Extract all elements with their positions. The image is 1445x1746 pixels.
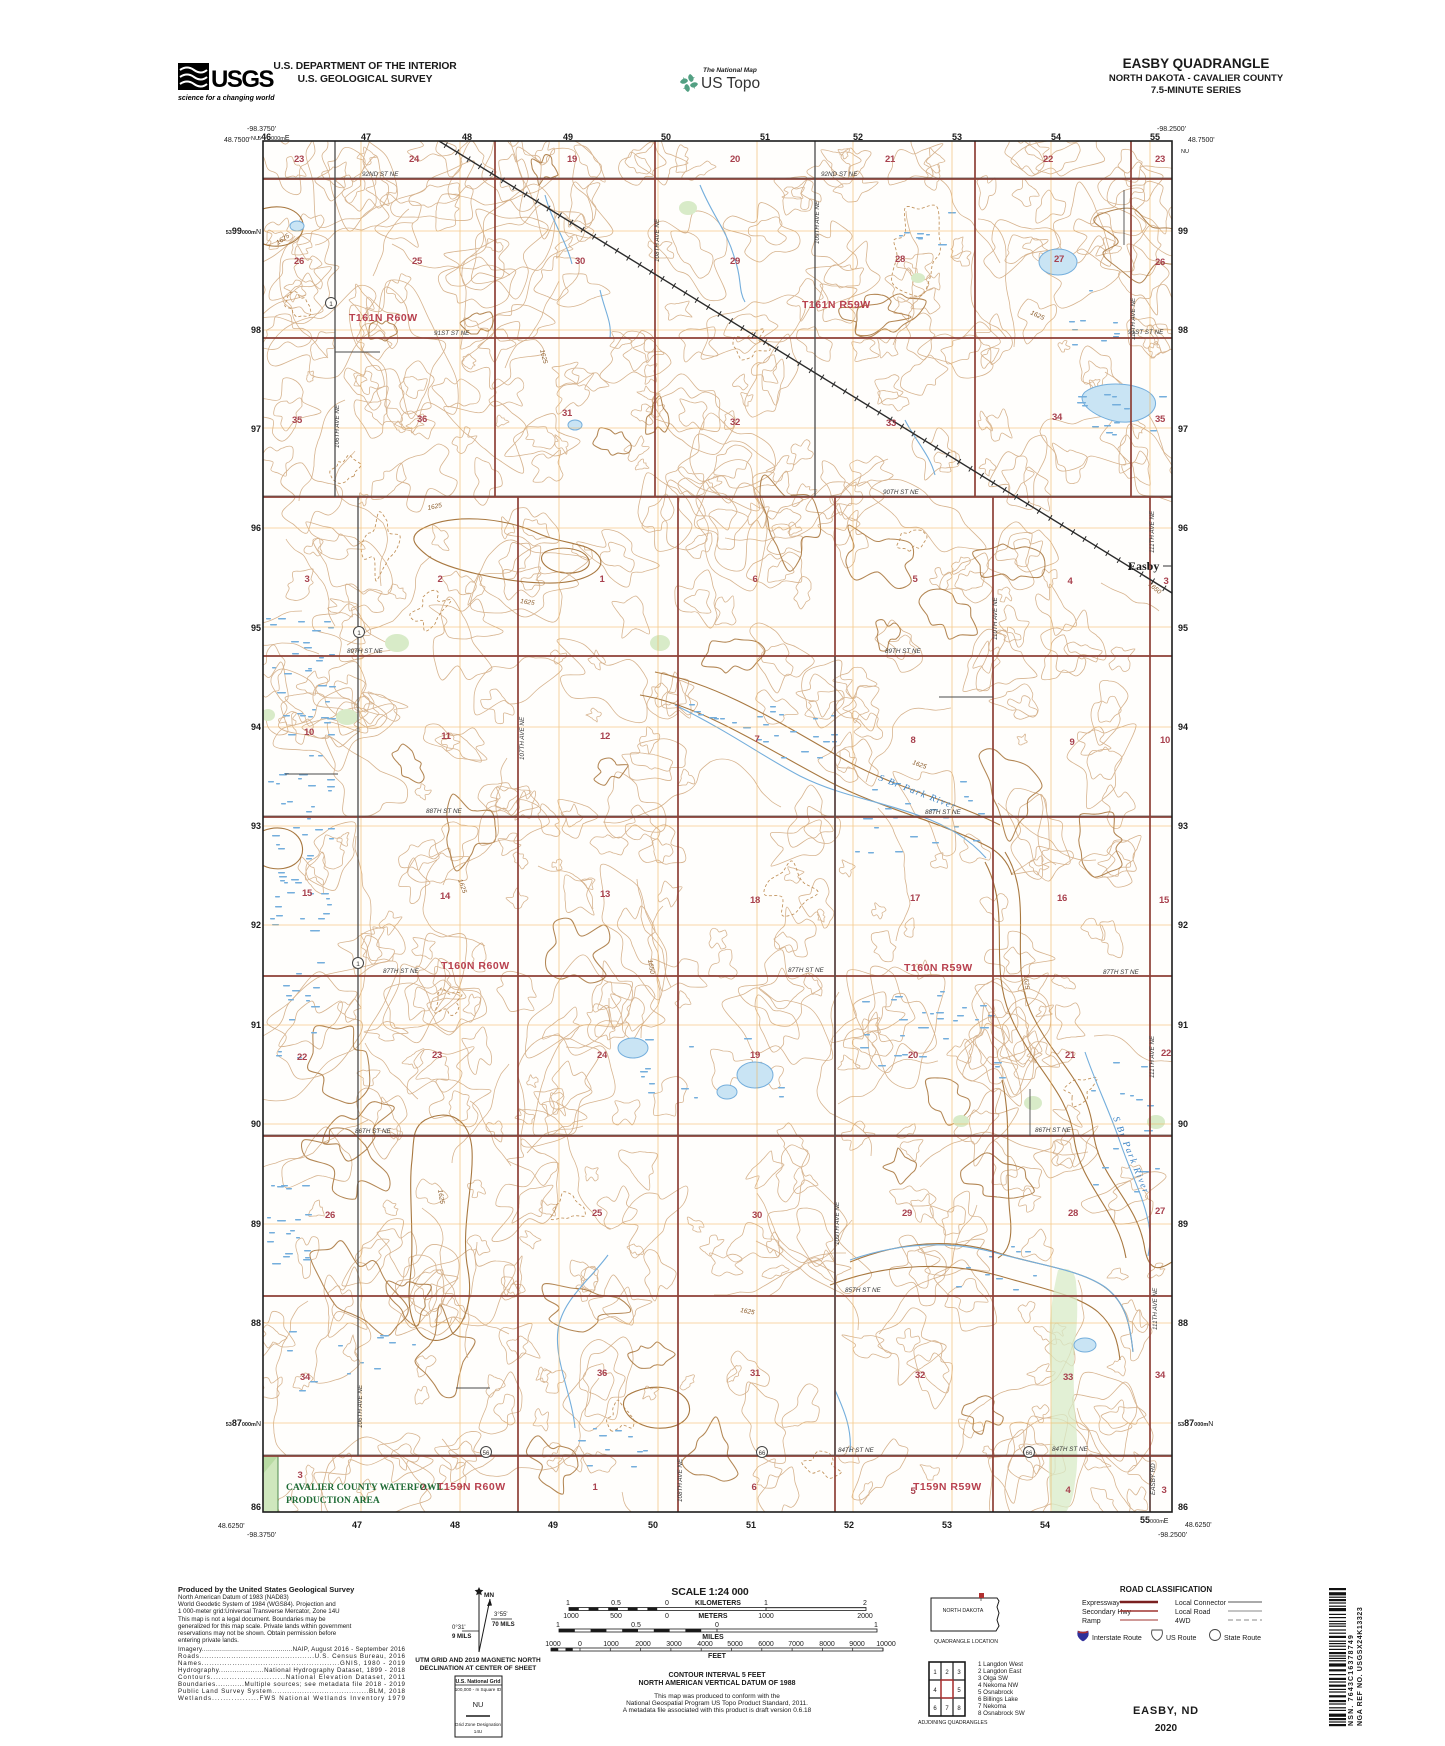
svg-text:56: 56: [483, 1451, 490, 1457]
svg-text:2: 2: [945, 1670, 949, 1676]
svg-text:Contours......................: Contours............................Nati…: [178, 1674, 406, 1681]
svg-text:3: 3: [1162, 1485, 1167, 1496]
svg-text:10000: 10000: [876, 1641, 896, 1648]
svg-text:17: 17: [910, 893, 920, 904]
svg-text:EASBY, ND: EASBY, ND: [1133, 1705, 1199, 1717]
svg-text:93: 93: [251, 821, 261, 831]
svg-text:4000: 4000: [697, 1641, 713, 1648]
svg-text:1: 1: [556, 1622, 560, 1629]
svg-text:546000mE: 546000mE: [258, 132, 290, 142]
svg-text:22: 22: [1043, 154, 1053, 165]
svg-text:48: 48: [450, 1520, 460, 1530]
svg-text:94: 94: [251, 722, 261, 732]
svg-text:1: 1: [329, 301, 333, 308]
svg-text:49: 49: [548, 1520, 558, 1530]
svg-text:3 Olga SW: 3 Olga SW: [978, 1675, 1008, 1682]
svg-text:QUADRANGLE LOCATION: QUADRANGLE LOCATION: [934, 1639, 998, 1645]
svg-text:109TH AVE NE: 109TH AVE NE: [834, 1201, 841, 1245]
svg-text:T159N R60W: T159N R60W: [437, 1481, 506, 1493]
svg-text:10: 10: [304, 727, 314, 738]
svg-text:111TH AVE NE: 111TH AVE NE: [1149, 510, 1156, 553]
svg-text:MN: MN: [484, 1592, 494, 1599]
svg-text:Produced by the United States: Produced by the United States Geological…: [178, 1585, 355, 1594]
svg-text:52: 52: [853, 132, 863, 142]
svg-text:METERS: METERS: [698, 1613, 728, 1620]
svg-text:1: 1: [356, 961, 360, 968]
svg-text:88: 88: [1178, 1318, 1188, 1328]
svg-text:21: 21: [885, 154, 896, 165]
svg-text:EASBY QUADRANGLE: EASBY QUADRANGLE: [1123, 56, 1270, 71]
svg-text:107TH AVE NE: 107TH AVE NE: [519, 716, 526, 760]
svg-text:3: 3: [298, 1470, 303, 1481]
svg-text:1000: 1000: [563, 1613, 579, 1620]
svg-text:95: 95: [251, 623, 261, 633]
svg-text:92ND ST NE: 92ND ST NE: [821, 171, 858, 178]
svg-text:89: 89: [1178, 1219, 1188, 1229]
svg-text:6: 6: [753, 574, 758, 585]
svg-text:84TH ST NE: 84TH ST NE: [838, 1447, 874, 1454]
svg-text:90: 90: [251, 1119, 261, 1129]
svg-text:55: 55: [1150, 132, 1160, 142]
svg-text:87TH ST NE: 87TH ST NE: [788, 967, 824, 974]
svg-text:27: 27: [1155, 1206, 1165, 1217]
svg-text:20: 20: [908, 1050, 918, 1061]
svg-text:DECLINATION AT CENTER OF SHEET: DECLINATION AT CENTER OF SHEET: [420, 1665, 537, 1672]
svg-text:CAVALIER COUNTY WATERFOWL: CAVALIER COUNTY WATERFOWL: [286, 1483, 443, 1493]
svg-text:North American Datum of 1983 (: North American Datum of 1983 (NAD83): [178, 1594, 289, 1601]
svg-text:92ND ST NE: 92ND ST NE: [362, 171, 399, 178]
svg-text:35: 35: [292, 415, 303, 426]
svg-text:34: 34: [1155, 1370, 1166, 1381]
svg-text:24: 24: [597, 1050, 608, 1061]
svg-text:Secondary Hwy: Secondary Hwy: [1082, 1609, 1132, 1616]
svg-text:35: 35: [1155, 414, 1166, 425]
svg-text:7: 7: [755, 734, 760, 745]
svg-text:14U: 14U: [474, 1729, 482, 1734]
svg-text:3: 3: [1164, 576, 1169, 587]
svg-text:NORTH AMERICAN VERTICAL DATUM: NORTH AMERICAN VERTICAL DATUM OF 1988: [639, 1680, 796, 1687]
svg-text:1 Langdon West: 1 Langdon West: [978, 1661, 1023, 1668]
svg-text:54: 54: [1040, 1520, 1050, 1530]
svg-text:Expressway: Expressway: [1082, 1600, 1120, 1607]
svg-text:T160N R59W: T160N R59W: [904, 962, 973, 974]
svg-text:7000: 7000: [788, 1641, 804, 1648]
svg-text:T161N R60W: T161N R60W: [349, 312, 418, 324]
svg-text:Local Road: Local Road: [1175, 1609, 1211, 1616]
svg-text:21: 21: [1065, 1050, 1076, 1061]
svg-text:2: 2: [438, 574, 443, 585]
svg-text:91ST ST NE: 91ST ST NE: [434, 330, 470, 337]
svg-text:32: 32: [915, 1370, 925, 1381]
svg-text:19: 19: [567, 154, 577, 165]
svg-text:3°55': 3°55': [494, 1612, 508, 1618]
svg-text:111TH AVE NE: 111TH AVE NE: [1130, 297, 1137, 340]
svg-text:88TH ST NE: 88TH ST NE: [426, 808, 462, 815]
svg-text:6: 6: [752, 1482, 757, 1493]
svg-text:2000: 2000: [635, 1641, 651, 1648]
svg-text:85TH ST NE: 85TH ST NE: [845, 1287, 881, 1294]
svg-text:5399000mN: 5399000mN: [226, 226, 261, 236]
svg-text:33: 33: [886, 418, 896, 429]
svg-text:SCALE 1:24 000: SCALE 1:24 000: [671, 1586, 749, 1598]
svg-text:CONTOUR INTERVAL 5 FEET: CONTOUR INTERVAL 5 FEET: [668, 1672, 766, 1679]
svg-text:90: 90: [1178, 1119, 1188, 1129]
svg-text:26: 26: [325, 1210, 335, 1221]
svg-text:20: 20: [730, 154, 740, 165]
svg-text:Easby: Easby: [1128, 559, 1159, 573]
svg-text:32: 32: [730, 417, 740, 428]
svg-text:4: 4: [933, 1688, 937, 1694]
svg-text:7.5-MINUTE SERIES: 7.5-MINUTE SERIES: [1151, 85, 1241, 96]
svg-text:51: 51: [746, 1520, 756, 1530]
svg-text:0°31': 0°31': [452, 1625, 466, 1631]
svg-text:Wetlands.................FWS: Wetlands.................FWS National We…: [178, 1695, 406, 1702]
svg-text:FEET: FEET: [708, 1653, 727, 1660]
svg-text:96: 96: [251, 523, 261, 533]
svg-text:70 MILS: 70 MILS: [492, 1622, 515, 1628]
svg-text:91: 91: [251, 1020, 261, 1030]
svg-text:33: 33: [1063, 1372, 1073, 1383]
svg-text:A metadata file associated wit: A metadata file associated with this pro…: [623, 1707, 812, 1714]
svg-text:14: 14: [440, 891, 451, 902]
svg-text:16: 16: [1057, 893, 1067, 904]
svg-text:0.5: 0.5: [631, 1622, 641, 1629]
svg-text:50: 50: [648, 1520, 658, 1530]
svg-text:31: 31: [562, 408, 573, 419]
svg-text:The National Map: The National Map: [703, 67, 757, 74]
svg-text:87TH ST NE: 87TH ST NE: [383, 968, 419, 975]
svg-text:110TH AVE NE: 110TH AVE NE: [992, 597, 999, 640]
svg-text:500: 500: [610, 1613, 622, 1620]
svg-text:8 Osnabrock SW: 8 Osnabrock SW: [978, 1710, 1025, 1717]
svg-text:86: 86: [251, 1502, 261, 1512]
svg-text:90TH ST NE: 90TH ST NE: [883, 489, 919, 496]
svg-text:generalized for this map scale: generalized for this map scale. Private …: [178, 1623, 352, 1630]
svg-text:0.5: 0.5: [611, 1600, 621, 1607]
svg-text:UTM GRID AND 2019 MAGNETIC NOR: UTM GRID AND 2019 MAGNETIC NORTH: [415, 1657, 541, 1664]
svg-text:1: 1: [933, 1670, 937, 1676]
svg-text:26: 26: [1155, 257, 1165, 268]
svg-text:US Topo: US Topo: [701, 75, 760, 92]
svg-text:KILOMETERS: KILOMETERS: [695, 1600, 741, 1607]
svg-text:88: 88: [251, 1318, 261, 1328]
svg-text:State Route: State Route: [1224, 1635, 1261, 1642]
svg-text:1000: 1000: [545, 1641, 561, 1648]
svg-text:reservations may not be shown.: reservations may not be shown. Obtain pe…: [178, 1630, 337, 1637]
svg-text:8000: 8000: [819, 1641, 835, 1648]
svg-text:97: 97: [251, 424, 261, 434]
svg-text:2: 2: [863, 1600, 867, 1607]
svg-text:108TH AVE NE: 108TH AVE NE: [677, 1458, 684, 1502]
svg-text:NU: NU: [1181, 149, 1189, 155]
svg-text:89TH ST NE: 89TH ST NE: [885, 648, 921, 655]
svg-text:48.7500': 48.7500': [224, 137, 251, 144]
svg-text:Ramp: Ramp: [1082, 1618, 1101, 1625]
svg-text:7 Nekoma: 7 Nekoma: [978, 1703, 1007, 1710]
svg-text:36: 36: [417, 414, 427, 425]
svg-text:97: 97: [1178, 424, 1188, 434]
svg-text:T159N R59W: T159N R59W: [913, 1481, 982, 1493]
svg-text:5 Osnabrock: 5 Osnabrock: [978, 1689, 1014, 1696]
svg-text:66: 66: [759, 1451, 766, 1457]
svg-text:15: 15: [302, 888, 313, 899]
svg-text:USGS: USGS: [211, 66, 275, 93]
svg-text:6: 6: [933, 1706, 937, 1712]
svg-text:47: 47: [361, 132, 371, 142]
svg-text:8: 8: [911, 735, 916, 746]
svg-text:-98.2500': -98.2500': [1158, 1532, 1187, 1539]
svg-text:111TH AVE NE: 111TH AVE NE: [1149, 1035, 1156, 1078]
svg-text:0: 0: [578, 1641, 582, 1648]
svg-text:Names.........................: Names...................................…: [178, 1660, 406, 1667]
svg-text:12: 12: [600, 731, 610, 742]
svg-text:89: 89: [251, 1219, 261, 1229]
svg-text:28: 28: [895, 254, 905, 265]
svg-text:51: 51: [760, 132, 770, 142]
svg-text:6 Billings Lake: 6 Billings Lake: [978, 1696, 1018, 1703]
svg-text:23: 23: [1155, 154, 1165, 165]
svg-text:1650: 1650: [1047, 103, 1063, 112]
svg-text:NSN. 7643C16378749: NSN. 7643C16378749: [1348, 1634, 1355, 1726]
svg-text:1625: 1625: [1022, 975, 1030, 990]
svg-text:EASBY RD: EASBY RD: [1150, 1463, 1157, 1495]
svg-text:52: 52: [844, 1520, 854, 1530]
svg-text:34: 34: [1052, 412, 1063, 423]
svg-text:8: 8: [957, 1706, 961, 1712]
svg-text:27: 27: [1054, 254, 1064, 265]
svg-text:6000: 6000: [758, 1641, 774, 1648]
svg-text:1: 1: [764, 1600, 768, 1607]
svg-text:96: 96: [1178, 523, 1188, 533]
svg-text:PRODUCTION AREA: PRODUCTION AREA: [286, 1496, 380, 1506]
svg-text:48.6250': 48.6250': [1185, 1522, 1212, 1529]
svg-text:47: 47: [352, 1520, 362, 1530]
svg-text:2000: 2000: [857, 1613, 873, 1620]
svg-text:3: 3: [957, 1670, 961, 1676]
svg-text:Grid Zone Designation: Grid Zone Designation: [455, 1722, 501, 1727]
svg-text:0: 0: [665, 1600, 669, 1607]
svg-text:29: 29: [902, 1208, 912, 1219]
svg-text:1: 1: [566, 1600, 570, 1607]
svg-text:48.6250': 48.6250': [218, 1523, 245, 1530]
svg-text:Interstate Route: Interstate Route: [1092, 1635, 1142, 1642]
svg-text:2020: 2020: [1155, 1723, 1178, 1734]
svg-text:9 MILS: 9 MILS: [452, 1634, 471, 1640]
svg-text:entering private lands.: entering private lands.: [178, 1637, 239, 1644]
svg-text:ADJOINING QUADRANGLES: ADJOINING QUADRANGLES: [918, 1720, 988, 1726]
svg-text:Roads.........................: Roads...................................…: [178, 1653, 406, 1660]
svg-text:109TH AVE NE: 109TH AVE NE: [814, 200, 821, 244]
svg-text:T161N R59W: T161N R59W: [802, 299, 871, 311]
svg-text:MILES: MILES: [702, 1634, 724, 1641]
svg-text:50: 50: [661, 132, 671, 142]
svg-text:54: 54: [1051, 132, 1061, 142]
svg-text:-98.3750': -98.3750': [247, 1532, 276, 1539]
svg-text:95: 95: [1178, 623, 1188, 633]
svg-text:86TH ST NE: 86TH ST NE: [1035, 1127, 1071, 1134]
svg-text:84TH ST NE: 84TH ST NE: [1052, 1446, 1088, 1453]
svg-text:55000mE: 55000mE: [1140, 1515, 1169, 1525]
svg-text:U.S. GEOLOGICAL SURVEY: U.S. GEOLOGICAL SURVEY: [298, 74, 433, 85]
svg-text:34: 34: [300, 1372, 311, 1383]
svg-text:U.S. National Grid: U.S. National Grid: [455, 1679, 500, 1685]
svg-text:5387000mN: 5387000mN: [1178, 1418, 1213, 1428]
svg-text:30: 30: [752, 1210, 762, 1221]
svg-text:Boundaries............Multiple: Boundaries............Multiple sources; …: [178, 1681, 406, 1688]
svg-text:World Geodetic System of 1984: World Geodetic System of 1984 (WGS84). P…: [178, 1601, 336, 1608]
svg-text:Public Land Survey Syste: Public Land Survey System...............…: [178, 1688, 406, 1695]
svg-text:26: 26: [294, 256, 304, 267]
svg-text:13: 13: [600, 889, 610, 900]
svg-text:0: 0: [715, 1622, 719, 1629]
svg-text:US Route: US Route: [1166, 1635, 1196, 1642]
svg-text:48.7500': 48.7500': [1188, 137, 1215, 144]
svg-text:Local Connector: Local Connector: [1175, 1600, 1227, 1607]
svg-text:0: 0: [665, 1613, 669, 1620]
svg-text:92: 92: [251, 920, 261, 930]
svg-text:T160N R60W: T160N R60W: [441, 960, 510, 972]
svg-text:NORTH DAKOTA: NORTH DAKOTA: [943, 1608, 984, 1614]
svg-text:89TH ST NE: 89TH ST NE: [347, 648, 383, 655]
svg-text:7: 7: [945, 1706, 949, 1712]
svg-text:3: 3: [305, 574, 310, 585]
svg-text:5000: 5000: [727, 1641, 743, 1648]
svg-text:ROAD CLASSIFICATION: ROAD CLASSIFICATION: [1120, 1585, 1213, 1594]
svg-text:11: 11: [441, 731, 451, 742]
svg-text:106TH AVE NE: 106TH AVE NE: [357, 1384, 364, 1428]
svg-text:53: 53: [942, 1520, 952, 1530]
svg-text:23: 23: [294, 154, 304, 165]
svg-text:88TH ST NE: 88TH ST NE: [925, 809, 961, 816]
svg-text:99: 99: [1178, 226, 1188, 236]
svg-text:53: 53: [952, 132, 962, 142]
svg-text:NU: NU: [473, 1700, 484, 1709]
svg-text:93: 93: [1178, 821, 1188, 831]
svg-text:100,000 - m Square ID: 100,000 - m Square ID: [455, 1687, 502, 1692]
svg-text:36: 36: [597, 1368, 607, 1379]
svg-text:86: 86: [1178, 1502, 1188, 1512]
svg-text:1000: 1000: [758, 1613, 774, 1620]
svg-text:2 Langdon East: 2 Langdon East: [978, 1668, 1022, 1675]
svg-text:25: 25: [412, 256, 423, 267]
svg-text:18: 18: [750, 895, 760, 906]
svg-text:1000: 1000: [603, 1641, 619, 1648]
svg-text:4WD: 4WD: [1175, 1618, 1191, 1625]
svg-text:3000: 3000: [666, 1641, 682, 1648]
svg-text:28: 28: [1068, 1208, 1078, 1219]
svg-text:106TH AVE NE: 106TH AVE NE: [334, 404, 341, 448]
svg-text:24: 24: [409, 154, 420, 165]
svg-text:22: 22: [297, 1052, 307, 1063]
svg-text:15: 15: [1159, 895, 1170, 906]
svg-text:U.S. DEPARTMENT OF THE INTERIO: U.S. DEPARTMENT OF THE INTERIOR: [273, 61, 457, 72]
svg-text:This map was produced to confo: This map was produced to conform with th…: [654, 1693, 780, 1700]
svg-text:98: 98: [251, 325, 261, 335]
svg-text:66: 66: [1026, 1451, 1033, 1457]
svg-text:This map is not a legal docume: This map is not a legal document. Bounda…: [178, 1616, 326, 1623]
svg-text:-98.2500': -98.2500': [1157, 126, 1186, 133]
svg-text:29: 29: [730, 256, 740, 267]
svg-text:Imagery.......................: Imagery.................................…: [178, 1646, 406, 1653]
svg-text:92: 92: [1178, 920, 1188, 930]
svg-text:86TH ST NE: 86TH ST NE: [355, 1128, 391, 1135]
svg-text:31: 31: [750, 1368, 761, 1379]
svg-text:science for a changing world: science for a changing world: [178, 95, 275, 102]
svg-text:19: 19: [750, 1050, 760, 1061]
svg-text:87TH ST NE: 87TH ST NE: [1103, 969, 1139, 976]
svg-text:5387000mN: 5387000mN: [226, 1418, 261, 1428]
svg-text:1: 1: [357, 630, 361, 637]
svg-text:5: 5: [957, 1688, 961, 1694]
svg-text:National Geospatial Program US: National Geospatial Program US Topo Prod…: [626, 1700, 808, 1707]
svg-text:91: 91: [1178, 1020, 1188, 1030]
svg-text:1: 1: [874, 1622, 878, 1629]
svg-text:Hydrography...................: Hydrography....................National …: [178, 1667, 406, 1674]
svg-text:94: 94: [1178, 722, 1188, 732]
svg-text:NGA REF NO. USGSX24K13323: NGA REF NO. USGSX24K13323: [1357, 1607, 1364, 1726]
svg-text:111TH AVE NE: 111TH AVE NE: [1152, 1287, 1159, 1330]
svg-text:4 Nekoma NW: 4 Nekoma NW: [978, 1682, 1018, 1689]
svg-text:48: 48: [462, 132, 472, 142]
svg-text:108TH AVE NE: 108TH AVE NE: [654, 218, 661, 262]
svg-text:22: 22: [1161, 1048, 1171, 1059]
svg-text:9000: 9000: [849, 1641, 865, 1648]
svg-text:9: 9: [1070, 737, 1075, 748]
svg-text:49: 49: [563, 132, 573, 142]
svg-text:10: 10: [1160, 735, 1170, 746]
svg-text:1 000-meter grid:Universal Tra: 1 000-meter grid:Universal Transverse Me…: [178, 1608, 340, 1615]
svg-text:NORTH DAKOTA - CAVALIER COUNTY: NORTH DAKOTA - CAVALIER COUNTY: [1109, 73, 1284, 84]
svg-text:23: 23: [432, 1050, 442, 1061]
svg-text:30: 30: [575, 256, 585, 267]
svg-text:98: 98: [1178, 325, 1188, 335]
svg-text:25: 25: [592, 1208, 603, 1219]
